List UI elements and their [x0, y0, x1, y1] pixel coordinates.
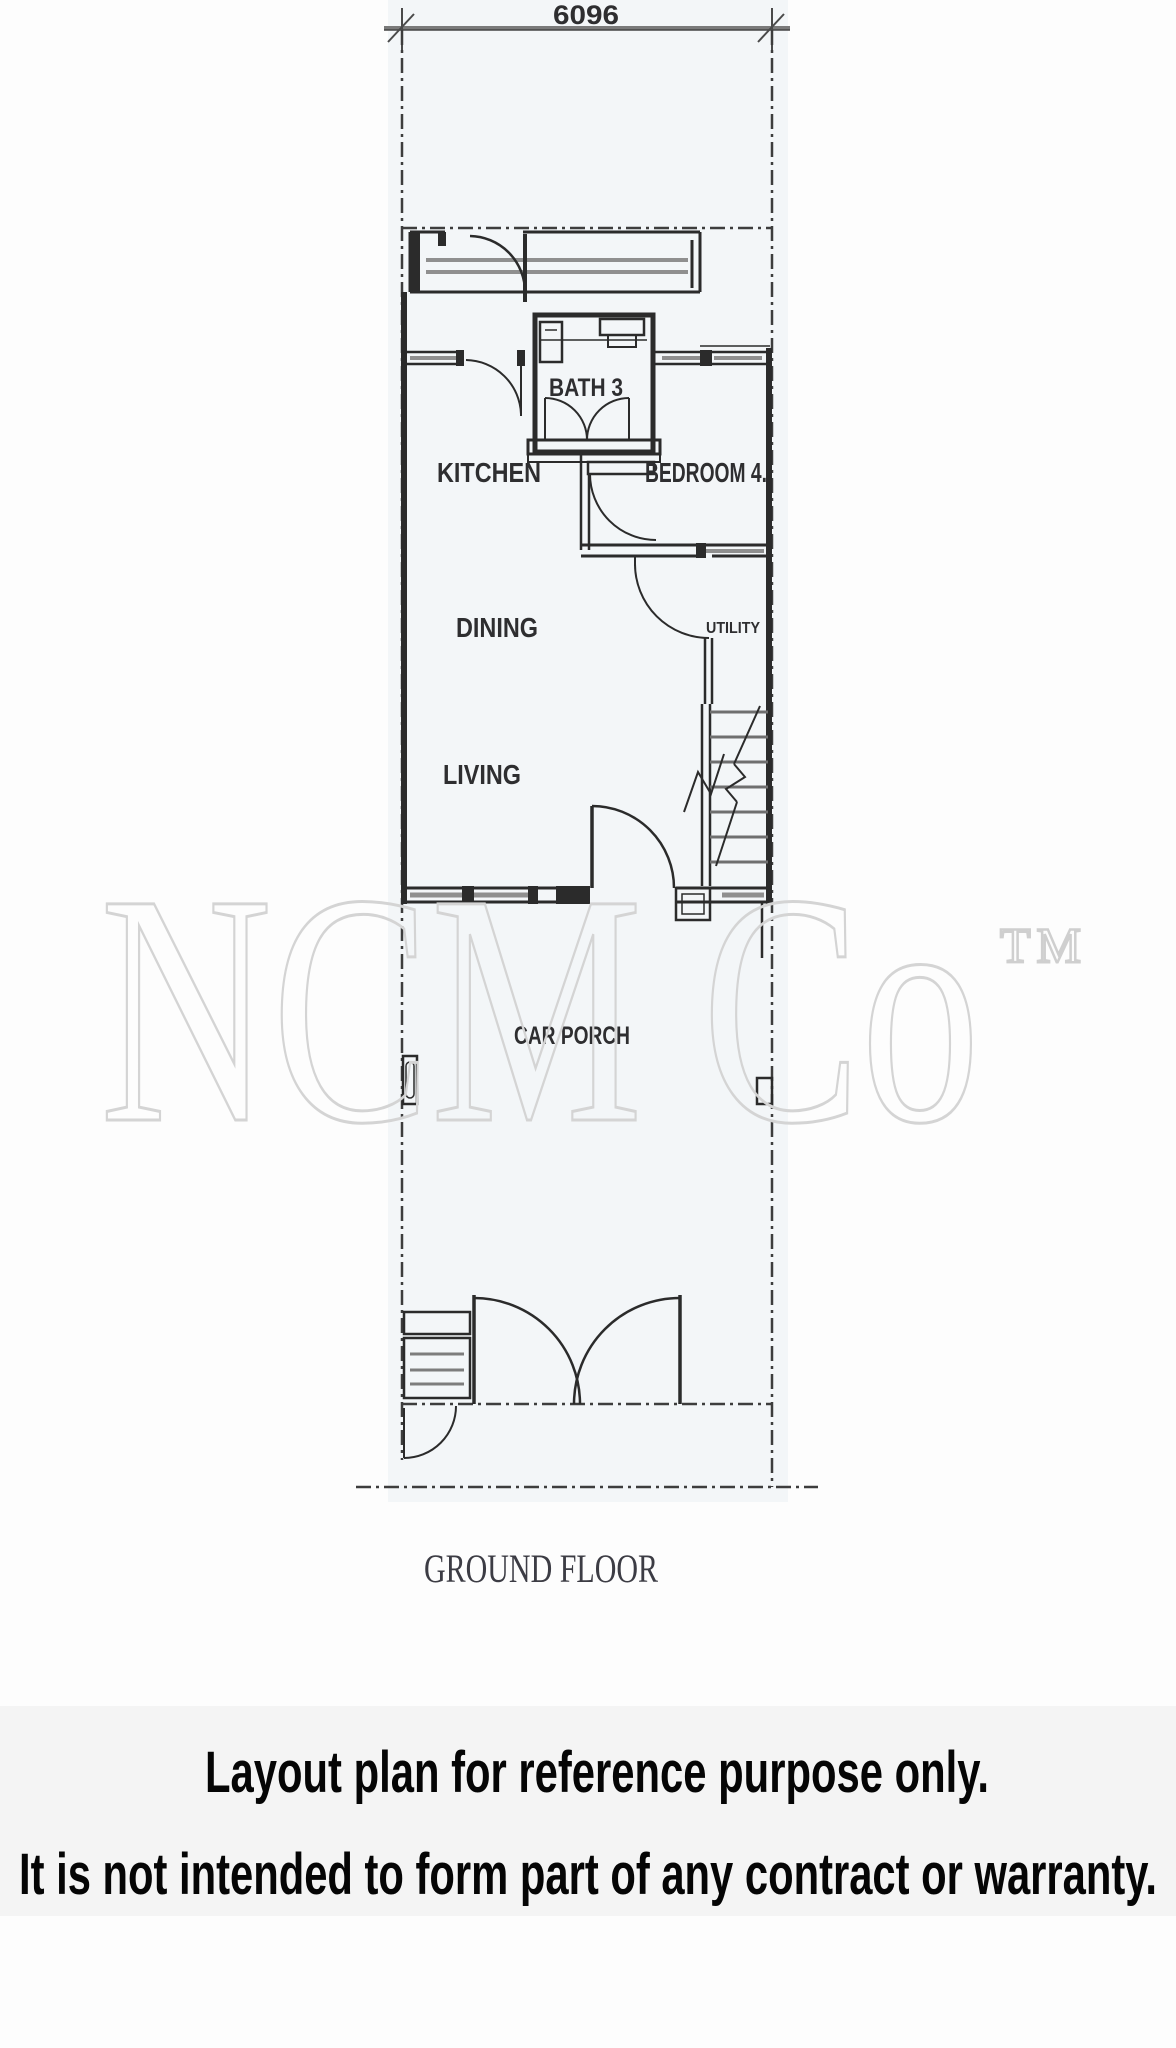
room-label-living: LIVING	[443, 759, 521, 790]
room-label-bedroom: BEDROOM 4.	[645, 457, 767, 488]
watermark: NCM Co TM	[100, 827, 1087, 1192]
disclaimer-line1: Layout plan for reference purpose only.	[205, 1740, 989, 1805]
dimension-label: 6096	[553, 0, 619, 30]
room-label-dining: DINING	[456, 612, 538, 643]
sheet-tint	[388, 0, 788, 1502]
floor-plan-page: 6096	[0, 0, 1176, 2048]
watermark-text: NCM Co	[100, 827, 980, 1192]
floor-plan-scan: 6096	[0, 0, 1176, 2048]
floor-title: GROUND FLOOR	[424, 1546, 658, 1591]
disclaimer-line2: It is not intended to form part of any c…	[19, 1842, 1157, 1907]
room-label-utility: UTILITY	[706, 620, 760, 637]
room-label-bath: BATH 3	[549, 374, 623, 402]
watermark-tm: TM	[1000, 917, 1087, 973]
room-label-kitchen: KITCHEN	[437, 457, 541, 488]
